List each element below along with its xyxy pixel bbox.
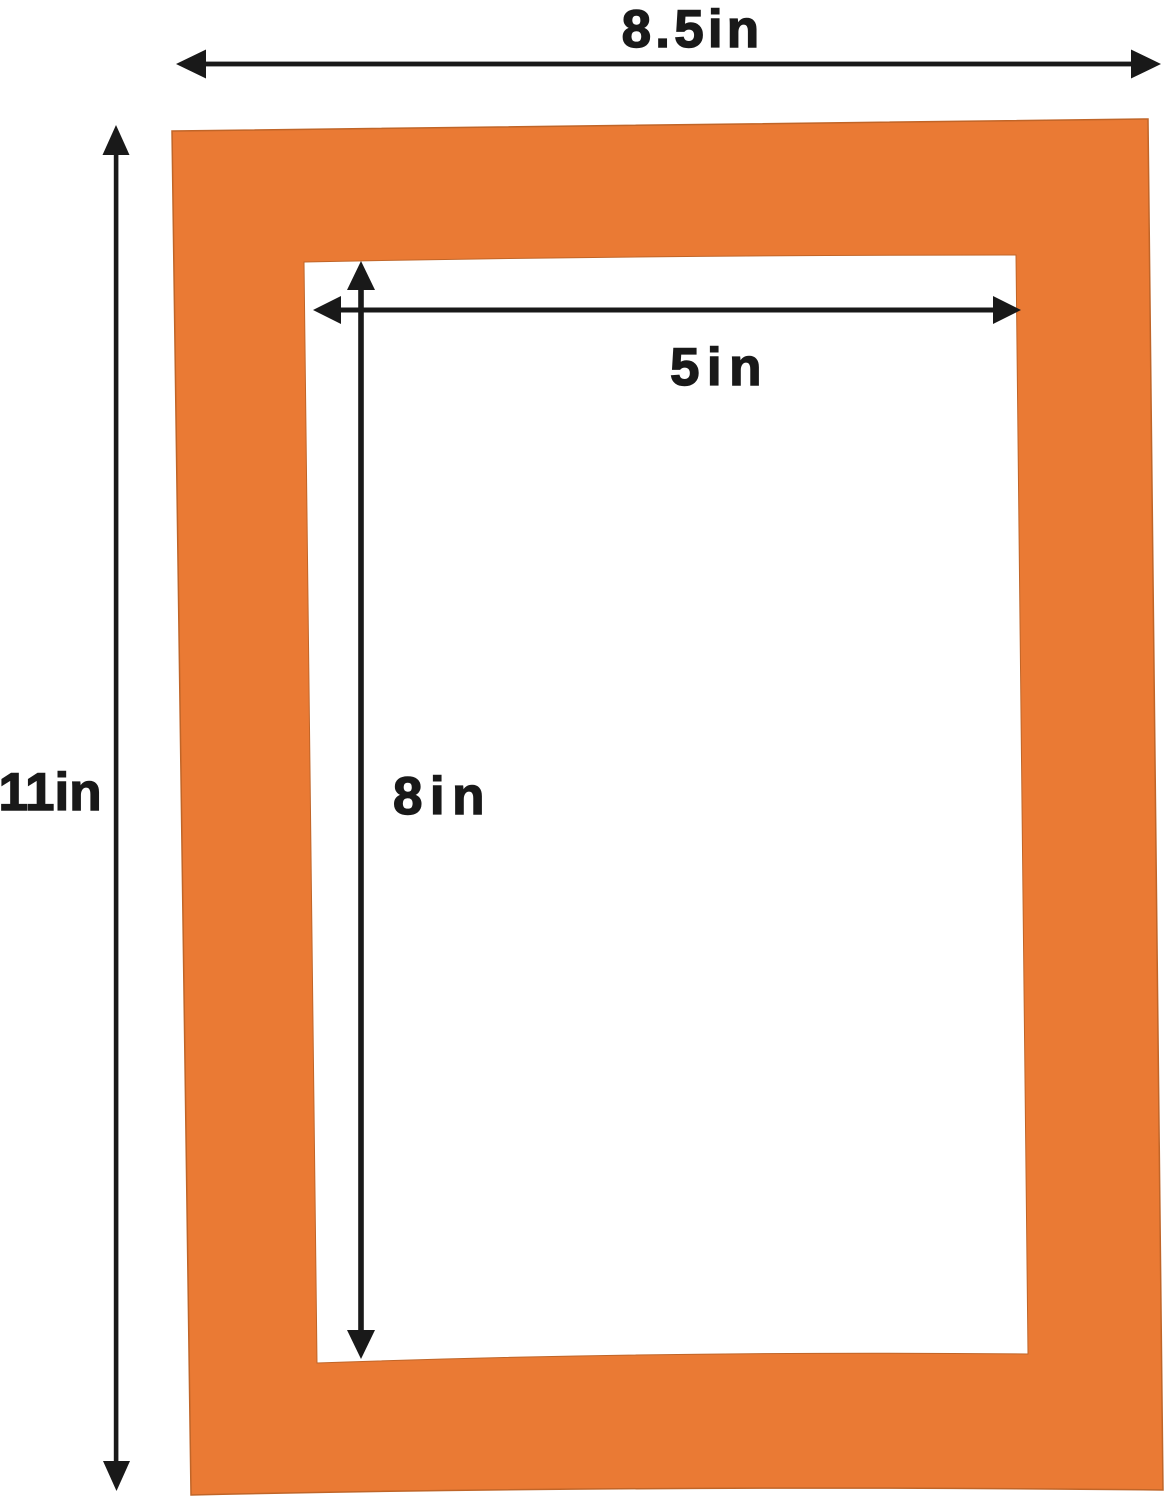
svg-text:8in: 8in	[393, 767, 492, 826]
svg-text:8.5in: 8.5in	[622, 0, 764, 59]
svg-text:5in: 5in	[670, 338, 769, 397]
svg-text:11in: 11in	[0, 763, 102, 822]
